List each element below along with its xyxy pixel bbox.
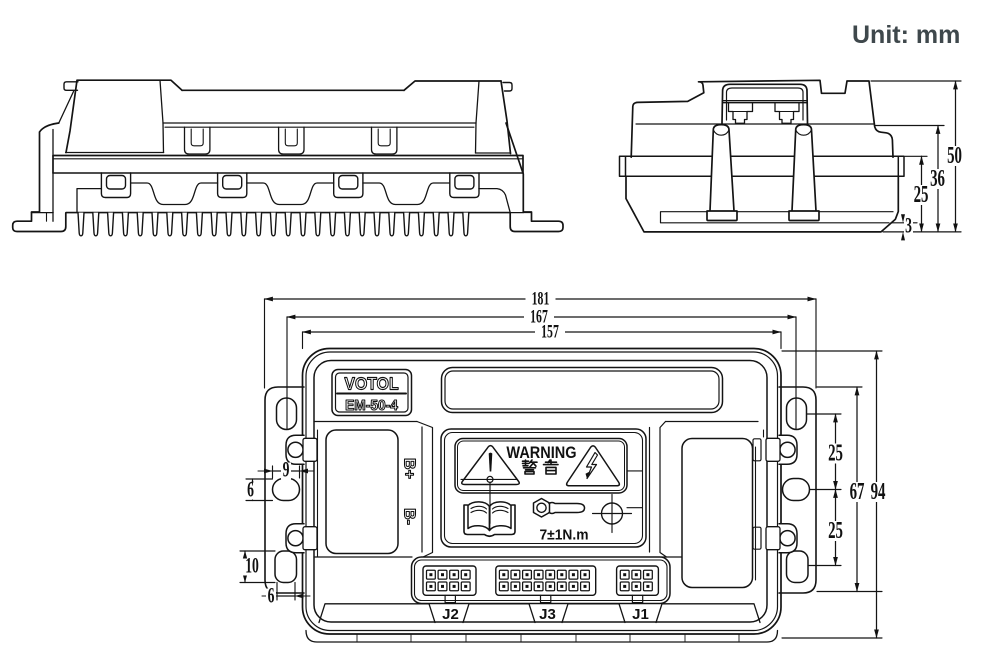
- svg-text:50: 50: [947, 142, 962, 168]
- svg-text:J2: J2: [442, 606, 459, 623]
- svg-text:25: 25: [828, 517, 843, 543]
- svg-text:B-: B-: [401, 508, 418, 525]
- svg-text:9: 9: [283, 457, 290, 481]
- svg-text:WARNING: WARNING: [506, 444, 576, 462]
- svg-text:VOTOL: VOTOL: [344, 374, 398, 394]
- svg-text:25: 25: [914, 181, 929, 207]
- svg-text:157: 157: [541, 322, 559, 342]
- svg-text:B+: B+: [401, 458, 418, 479]
- svg-text:36: 36: [930, 165, 945, 191]
- svg-text:6: 6: [268, 583, 275, 607]
- svg-text:6: 6: [247, 477, 254, 501]
- svg-text:10: 10: [245, 553, 259, 577]
- svg-text:EM-50-4: EM-50-4: [345, 397, 398, 413]
- svg-text:25: 25: [828, 440, 843, 466]
- svg-text:3: 3: [905, 213, 912, 237]
- svg-text:67: 67: [850, 478, 865, 504]
- svg-text:J1: J1: [632, 606, 649, 623]
- svg-text:Unit: mm: Unit: mm: [852, 21, 960, 49]
- svg-text:94: 94: [871, 478, 886, 504]
- svg-text:7±1N.m: 7±1N.m: [540, 527, 589, 544]
- svg-text:J3: J3: [539, 606, 556, 623]
